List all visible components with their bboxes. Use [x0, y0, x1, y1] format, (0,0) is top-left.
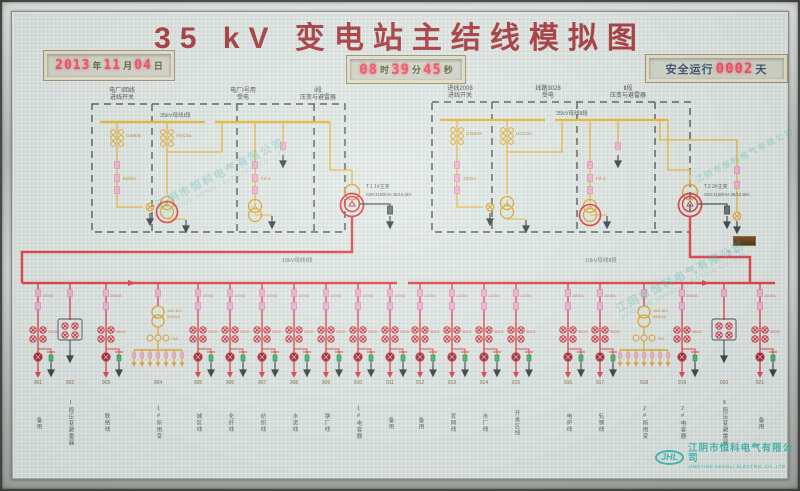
- time-second-unit: 秒: [444, 63, 453, 76]
- feeder-label-901: 901备用: [29, 380, 47, 459]
- feeder-label-912: 912备用: [411, 380, 429, 459]
- date-year-value: 2013: [55, 58, 90, 73]
- svg-text:300/5: 300/5: [692, 330, 702, 334]
- feeder-code: 921: [751, 380, 769, 386]
- svg-text:300/5: 300/5: [770, 330, 780, 334]
- svg-text:10/0.4kV: 10/0.4kV: [653, 309, 668, 313]
- device-label: GW5/W: [466, 131, 483, 136]
- bus-flow-arrow: [702, 280, 710, 286]
- svg-text:1200A: 1200A: [488, 293, 500, 298]
- feeder-912: 1200A 300/5: [412, 283, 440, 378]
- svg-text:300/5: 300/5: [272, 330, 282, 334]
- feeder-907: 1200A 300/5: [254, 283, 282, 378]
- time-hour-value: 08: [359, 62, 378, 78]
- feeder-916: 1200A 300/5: [560, 283, 588, 378]
- feeder-code: 902: [61, 380, 79, 386]
- feeder-905: 1200A 300/5: [190, 283, 218, 378]
- feeder-name: 备用: [387, 387, 394, 459]
- feeder-code: 916: [559, 380, 577, 386]
- svg-text:1200A: 1200A: [42, 293, 54, 298]
- feeder-label-908: 908水泥线: [285, 380, 303, 459]
- feeder-label-911: 911备用: [381, 380, 399, 459]
- feeder-code: 907: [253, 380, 271, 386]
- feeder-915: 1200A 300/5: [508, 283, 536, 378]
- svg-text:300/5: 300/5: [116, 330, 126, 334]
- svg-text:1200A: 1200A: [330, 293, 342, 298]
- svg-text:300/5: 300/5: [48, 330, 58, 334]
- device-label: 6200A: [123, 176, 137, 181]
- feeder-name: 钢厂线: [323, 387, 330, 459]
- svg-text:1200A: 1200A: [266, 293, 278, 298]
- feeder-906: 1200A 300/5: [222, 283, 250, 378]
- svg-text:1200A: 1200A: [298, 293, 310, 298]
- svg-text:300/5: 300/5: [208, 330, 218, 334]
- safety-suffix-label: 天: [755, 61, 767, 77]
- feeder-code: 919: [673, 380, 691, 386]
- time-hour-unit: 时: [380, 63, 389, 76]
- feeder-code: 917: [591, 380, 609, 386]
- safety-days-led-display: 安全运行 0002 天: [646, 55, 787, 82]
- feeder-name: Ⅰ段压变避雷器: [67, 387, 74, 459]
- safety-days-value: 0002: [716, 61, 754, 77]
- feeder-918: 10/0.4kV 500kVA 75/5: [618, 283, 671, 367]
- feeder-908: 1200A 300/5: [286, 283, 314, 378]
- feeder-code: 910: [349, 380, 367, 386]
- feeder-name: 城区线: [195, 387, 202, 459]
- bay-header: Ⅱ段 压变与避雷器: [593, 86, 663, 100]
- feeder-label-916: 916电炉线: [559, 380, 577, 459]
- company-name-en: JINGYING HENGLI ELECTRIC CO.,LTD: [688, 464, 800, 470]
- feeder-label-913: 913农网线: [443, 380, 461, 459]
- feeder-903: 2000A 300/5: [98, 283, 126, 378]
- bay-header-line: 进线开关: [87, 95, 157, 102]
- feeder-code: 903: [97, 380, 115, 386]
- mimic-board-photo: 35 kV 变电站主结线模拟图 2013 年 11 月 04 日 08 时 39…: [0, 0, 800, 491]
- feeder-name: 纺织线: [259, 387, 266, 459]
- svg-text:2000A: 2000A: [110, 293, 122, 298]
- bus35-1-label: 35kV母线Ⅰ段: [160, 111, 191, 119]
- bay-header-line: 受电: [513, 93, 583, 100]
- feeder-name: 2#所用变: [641, 387, 648, 459]
- bay-header-line: 电厂Ⅰ回线: [87, 88, 157, 95]
- bay-header-line: 进线开关: [425, 93, 495, 100]
- svg-text:1200A: 1200A: [456, 293, 468, 298]
- svg-text:1200A: 1200A: [764, 293, 776, 298]
- bay-header-line: 进线2008: [425, 86, 495, 93]
- nameplate-plaque: [733, 236, 756, 246]
- feeder-919: 2000A 300/5: [674, 283, 702, 378]
- feeder-code: 912: [411, 380, 429, 386]
- device-label: GW5/B: [126, 133, 141, 138]
- device-label: FZ-2: [596, 176, 606, 181]
- bay-header: 进线2008 进线开关: [425, 86, 495, 100]
- feeder-901: 1200A 300/5: [30, 283, 58, 378]
- feeder-code: 914: [475, 380, 493, 386]
- feeder-name: 电炉线: [565, 387, 572, 459]
- svg-text:75/5: 75/5: [657, 337, 664, 341]
- bay-header-line: 压变与避雷器: [283, 95, 353, 102]
- feeder-name: 轧钢线: [597, 387, 604, 459]
- time-minute-value: 39: [391, 62, 410, 78]
- feeder-code: 909: [317, 380, 335, 386]
- t2-name: T.2 2#主变: [704, 183, 728, 190]
- svg-text:2000A: 2000A: [686, 293, 698, 298]
- feeder-code: 906: [221, 380, 239, 386]
- bay-header-line: Ⅱ段: [593, 86, 663, 93]
- bay-header-line: 压变与避雷器: [593, 93, 663, 100]
- logo-oval-jhl: JHL: [655, 450, 684, 465]
- feeder-label-904: 9041#所用变: [149, 380, 167, 459]
- feeder-code: 901: [29, 380, 47, 386]
- feeder-902: [58, 283, 82, 362]
- feeder-name: 联络线: [103, 387, 110, 459]
- svg-text:300/5: 300/5: [430, 330, 440, 334]
- svg-text:10/0.4kV: 10/0.4kV: [167, 309, 182, 313]
- feeder-label-910: 9101#电容器: [349, 380, 367, 459]
- feeder-917: 1200A 300/5: [592, 283, 620, 378]
- feeder-label-915: 915开发区线: [507, 380, 525, 459]
- feeder-913: 1200A 300/5: [444, 283, 472, 378]
- feeder-code: 920: [715, 380, 733, 386]
- svg-text:1200A: 1200A: [520, 293, 532, 298]
- feeder-name: 水厂线: [481, 387, 488, 459]
- svg-text:300/5: 300/5: [610, 330, 620, 334]
- feeder-name: 水泥线: [291, 387, 298, 459]
- feeder-label-907: 907纺织线: [253, 380, 271, 459]
- feeder-label-903: 903联络线: [97, 380, 115, 459]
- bay-header: 电厂Ⅰ回线 进线开关: [87, 88, 157, 102]
- feeder-name: 化纤线: [227, 387, 234, 459]
- feeder-911: 1200A 300/5: [382, 283, 410, 378]
- feeder-code: 911: [381, 380, 399, 386]
- svg-text:300/5: 300/5: [400, 330, 410, 334]
- feeder-label-914: 914水厂线: [475, 380, 493, 459]
- bay-header-line: 受电: [208, 95, 278, 102]
- svg-text:500kVA: 500kVA: [653, 315, 666, 319]
- device-label: FZ-1: [261, 176, 271, 181]
- svg-text:1200A: 1200A: [604, 293, 616, 298]
- feeder-code: 918: [635, 380, 653, 386]
- t1-spec: SZ9-3150kVA 35/10.5kV: [366, 192, 412, 197]
- svg-text:1200A: 1200A: [202, 293, 214, 298]
- svg-text:300/5: 300/5: [578, 330, 588, 334]
- company-name-cn: 江阴市恒科电气有限公司: [688, 444, 800, 464]
- bus35-2-label: 35kV母线Ⅱ段: [556, 109, 588, 117]
- feeder-904: 10/0.4kV 500kVA 75/5: [132, 283, 185, 367]
- feeder-920: [712, 283, 736, 362]
- device-label: 3200A: [463, 176, 477, 181]
- time-minute-unit: 分: [412, 63, 421, 76]
- device-label: HGC5a: [176, 133, 192, 138]
- svg-text:300/5: 300/5: [240, 330, 250, 334]
- feeder-label-902: 902Ⅰ段压变避雷器: [61, 380, 79, 459]
- feeder-code: 904: [149, 380, 167, 386]
- svg-text:1200A: 1200A: [362, 293, 374, 298]
- feeder-name: 备用: [417, 387, 424, 459]
- date-day-unit: 日: [154, 59, 163, 72]
- bay-header: 电厂Ⅰ号用 受电: [208, 88, 278, 102]
- bay-header: Ⅰ段 压变与避雷器: [283, 88, 353, 102]
- feeder-909: 1200A 300/5: [318, 283, 346, 378]
- time-led-display: 08 时 39 分 45 秒: [347, 56, 465, 83]
- feeder-name: 农网线: [449, 387, 456, 459]
- svg-text:300/5: 300/5: [494, 330, 504, 334]
- feeder-label-918: 9182#所用变: [635, 380, 653, 459]
- svg-text:1200A: 1200A: [572, 293, 584, 298]
- feeder-914: 1200A 300/5: [476, 283, 504, 378]
- device-label: HGC5A: [516, 131, 533, 136]
- feeder-code: 905: [189, 380, 207, 386]
- bay-header-line: 线路3028: [513, 86, 583, 93]
- date-month-unit: 月: [123, 59, 132, 72]
- svg-text:75/5: 75/5: [171, 337, 178, 341]
- date-month-value: 11: [103, 58, 121, 73]
- svg-text:1200A: 1200A: [394, 293, 406, 298]
- date-year-unit: 年: [92, 59, 101, 72]
- feeder-label-906: 906化纤线: [221, 380, 239, 459]
- svg-text:1200A: 1200A: [424, 293, 436, 298]
- t1-name: T.1 1#主变: [366, 183, 390, 190]
- t2-spec: SZ9-3150kVA 35/10.5kV: [704, 192, 750, 197]
- svg-text:300/5: 300/5: [304, 330, 314, 334]
- bus10-1-label: 10kV母线Ⅰ段: [282, 256, 313, 264]
- bay-header: 线路3028 受电: [513, 86, 583, 100]
- feeder-name: 备用: [35, 387, 42, 459]
- svg-text:1200A: 1200A: [234, 293, 246, 298]
- date-day-value: 04: [134, 58, 152, 73]
- bus10-2-label: 10kV母线Ⅱ段: [585, 256, 617, 264]
- svg-text:300/5: 300/5: [462, 330, 472, 334]
- feeder-910: 1200A 300/5: [350, 283, 378, 378]
- time-second-value: 45: [423, 62, 442, 78]
- feeder-label-917: 917轧钢线: [591, 380, 609, 459]
- svg-text:300/5: 300/5: [368, 330, 378, 334]
- feeder-label-905: 905城区线: [189, 380, 207, 459]
- manufacturer-logo: JHL 江阴市恒科电气有限公司 JINGYING HENGLI ELECTRIC…: [655, 444, 800, 470]
- svg-text:500kVA: 500kVA: [167, 315, 180, 319]
- bay-header-line: Ⅰ段: [283, 88, 353, 95]
- bay-header-line: 电厂Ⅰ号用: [208, 88, 278, 95]
- nameplate-caption: HK - 35: [726, 249, 740, 254]
- feeder-name: 开发区线: [513, 387, 520, 459]
- feeder-code: 913: [443, 380, 461, 386]
- date-led-display: 2013 年 11 月 04 日: [44, 51, 174, 80]
- feeder-name: 1#电容器: [355, 387, 362, 459]
- feeder-name: 1#所用变: [155, 387, 162, 459]
- feeder-circuits: 1200A 300/5 2000A 300/5: [30, 283, 780, 378]
- bus10-routing: [22, 216, 775, 283]
- feeder-code: 908: [285, 380, 303, 386]
- svg-text:300/5: 300/5: [336, 330, 346, 334]
- svg-text:300/5: 300/5: [526, 330, 536, 334]
- safety-prefix-label: 安全运行: [666, 61, 714, 77]
- feeder-921: 1200A 300/5: [752, 283, 780, 378]
- feeder-code: 915: [507, 380, 525, 386]
- feeder-label-909: 909钢厂线: [317, 380, 335, 459]
- bus-flow-arrow: [128, 280, 136, 286]
